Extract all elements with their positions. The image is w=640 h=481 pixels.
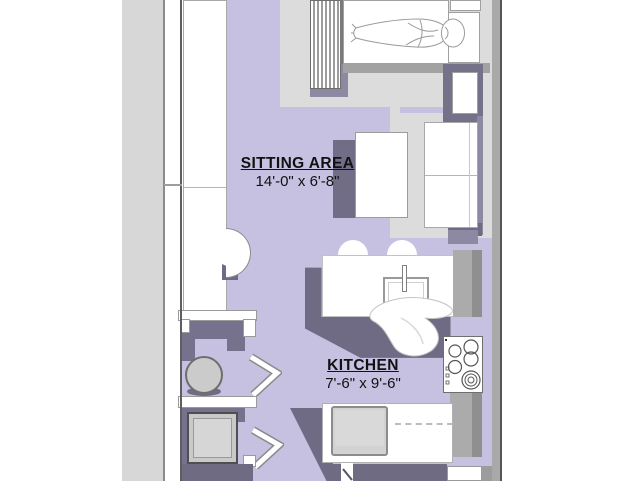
under-counter-sink-icon bbox=[331, 406, 388, 456]
door-opening bbox=[341, 463, 353, 481]
floor-notch bbox=[400, 107, 443, 113]
washer-inner bbox=[193, 418, 232, 458]
headboard-slats-icon bbox=[310, 0, 341, 89]
bifold-door-icon bbox=[248, 352, 282, 398]
headboard-shadow-bottom bbox=[310, 89, 348, 97]
wall-line-outer bbox=[163, 0, 165, 481]
kitchen-label: KITCHEN bbox=[300, 356, 426, 375]
wall-line-inner bbox=[180, 0, 182, 481]
counter-right-lower-edge bbox=[472, 392, 482, 457]
closet-round-fixture-icon bbox=[185, 356, 223, 394]
sitting-area-dimensions: 14'-0" x 6'-8" bbox=[225, 173, 370, 191]
wall-break-tick bbox=[164, 184, 182, 186]
sofa-icon bbox=[424, 122, 478, 228]
kitchen-label-group: KITCHEN 7'-6" x 9'-6" bbox=[300, 356, 426, 393]
wall-bottom-left bbox=[180, 464, 253, 481]
nightstand-icon bbox=[452, 72, 478, 114]
counter-right-upper-edge bbox=[472, 250, 482, 317]
wall-stub bbox=[243, 319, 256, 337]
sofa-armline bbox=[469, 123, 470, 227]
dishwasher-dash-line bbox=[395, 423, 453, 425]
wall-shadow-notch bbox=[448, 230, 478, 244]
floor-strip-top bbox=[227, 0, 280, 110]
person-figure-icon bbox=[350, 6, 472, 60]
sitting-area-label-group: SITTING AREA 14'-0" x 6'-8" bbox=[225, 154, 370, 191]
sitting-area-label: SITTING AREA bbox=[225, 154, 370, 173]
outside-strip bbox=[122, 0, 163, 481]
left-counter bbox=[183, 0, 227, 312]
washer-icon bbox=[187, 412, 238, 464]
cooktop-icon bbox=[443, 336, 483, 393]
wall-sill-2 bbox=[178, 396, 257, 408]
wall-right-line bbox=[500, 0, 502, 481]
faucet-icon bbox=[402, 265, 407, 292]
sink-basin bbox=[335, 410, 384, 446]
refrigerator-edge bbox=[481, 466, 492, 481]
floor-plan: SITTING AREA 14'-0" x 6'-8" KITCHEN 7'-6… bbox=[0, 0, 640, 481]
counter-divider bbox=[184, 187, 226, 188]
kitchen-dimensions: 7'-6" x 9'-6" bbox=[300, 375, 426, 393]
